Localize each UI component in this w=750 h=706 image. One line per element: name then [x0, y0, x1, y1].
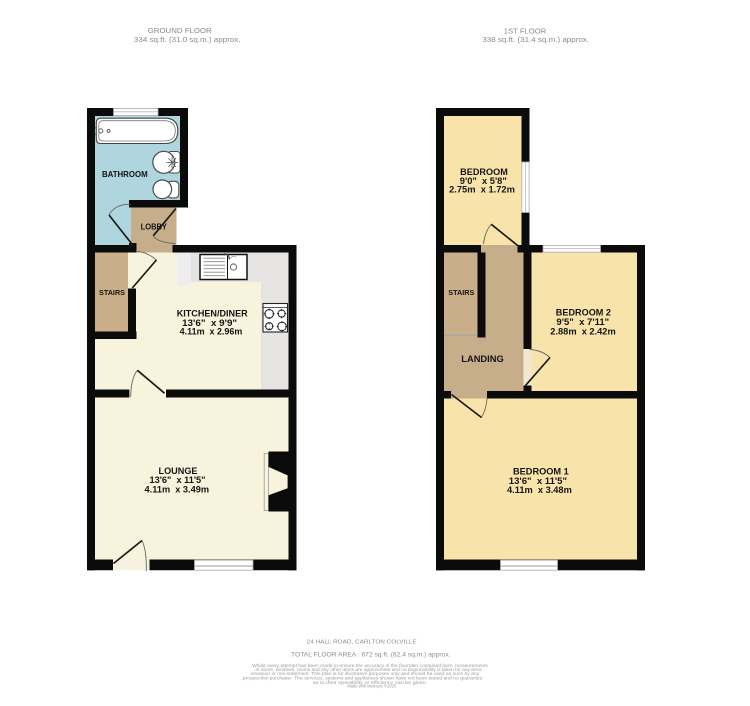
svg-text:4.11m x 3.48m: 4.11m x 3.48m — [507, 485, 572, 495]
svg-text:2.75m x 1.72m: 2.75m x 1.72m — [449, 185, 515, 195]
svg-text:STAIRS: STAIRS — [448, 288, 474, 297]
svg-text:4.11m x 3.49m: 4.11m x 3.49m — [145, 485, 210, 495]
svg-text:Made with Metropix ©2025: Made with Metropix ©2025 — [347, 684, 396, 689]
svg-text:TOTAL FLOOR AREA : 672 sq.ft.: TOTAL FLOOR AREA : 672 sq.ft. (62.4 sq.m… — [291, 652, 451, 659]
svg-text:1ST FLOOR: 1ST FLOOR — [504, 27, 547, 36]
svg-text:338 sq.ft. (31.4 sq.m.) approx: 338 sq.ft. (31.4 sq.m.) approx. — [482, 37, 589, 44]
svg-text:BATHROOM: BATHROOM — [102, 170, 148, 179]
svg-text:2.88m x 2.42m: 2.88m x 2.42m — [550, 327, 615, 337]
svg-text:GROUND FLOOR: GROUND FLOOR — [148, 26, 212, 35]
svg-text:4.11m x 2.96m: 4.11m x 2.96m — [180, 327, 243, 337]
svg-text:STAIRS: STAIRS — [99, 288, 125, 297]
svg-text:334 sq.ft. (31.0 sq.m.) approx: 334 sq.ft. (31.0 sq.m.) approx. — [134, 37, 241, 44]
svg-text:LOBBY: LOBBY — [141, 223, 168, 232]
svg-text:LANDING: LANDING — [461, 354, 503, 364]
svg-text:9'5" x 7'11": 9'5" x 7'11" — [556, 317, 609, 327]
svg-text:13'6" x 11'5": 13'6" x 11'5" — [150, 475, 206, 485]
svg-text:24 HALL ROAD, CARLTON COLVILLE: 24 HALL ROAD, CARLTON COLVILLE — [307, 640, 417, 646]
